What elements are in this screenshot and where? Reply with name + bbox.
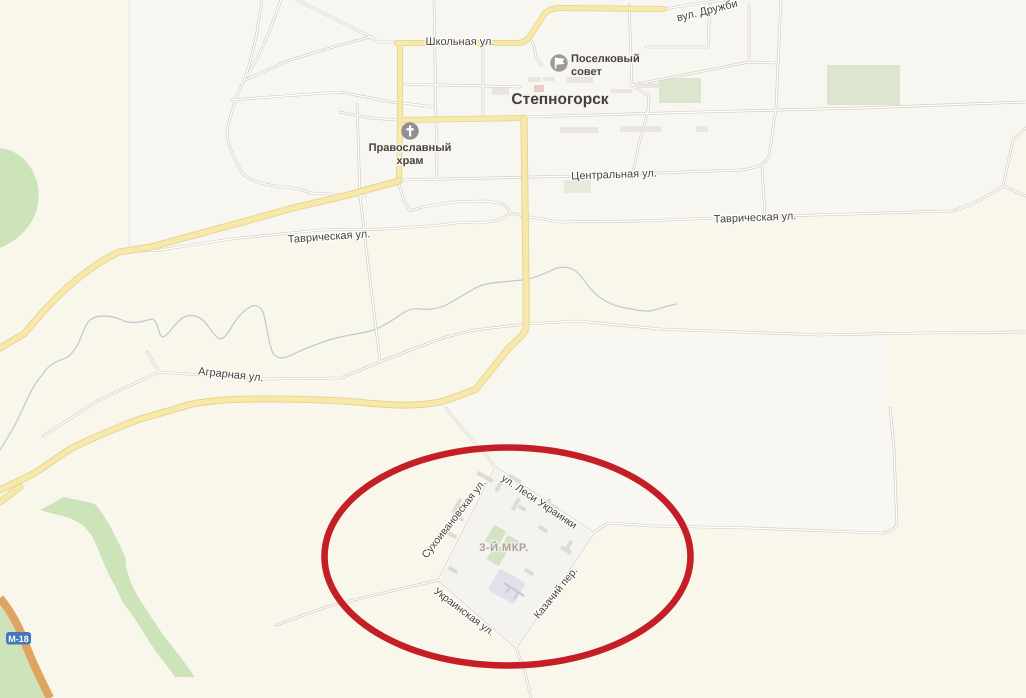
svg-text:Школьная ул.: Школьная ул.	[426, 36, 495, 48]
svg-text:3-Й МКР.: 3-Й МКР.	[479, 541, 528, 554]
svg-text:Поселковый: Поселковый	[571, 53, 640, 65]
svg-text:Православный: Православный	[369, 142, 452, 154]
svg-text:Степногорск: Степногорск	[511, 91, 608, 108]
svg-text:совет: совет	[571, 66, 602, 78]
svg-text:М-18: М-18	[8, 634, 29, 644]
svg-text:храм: храм	[396, 155, 423, 167]
